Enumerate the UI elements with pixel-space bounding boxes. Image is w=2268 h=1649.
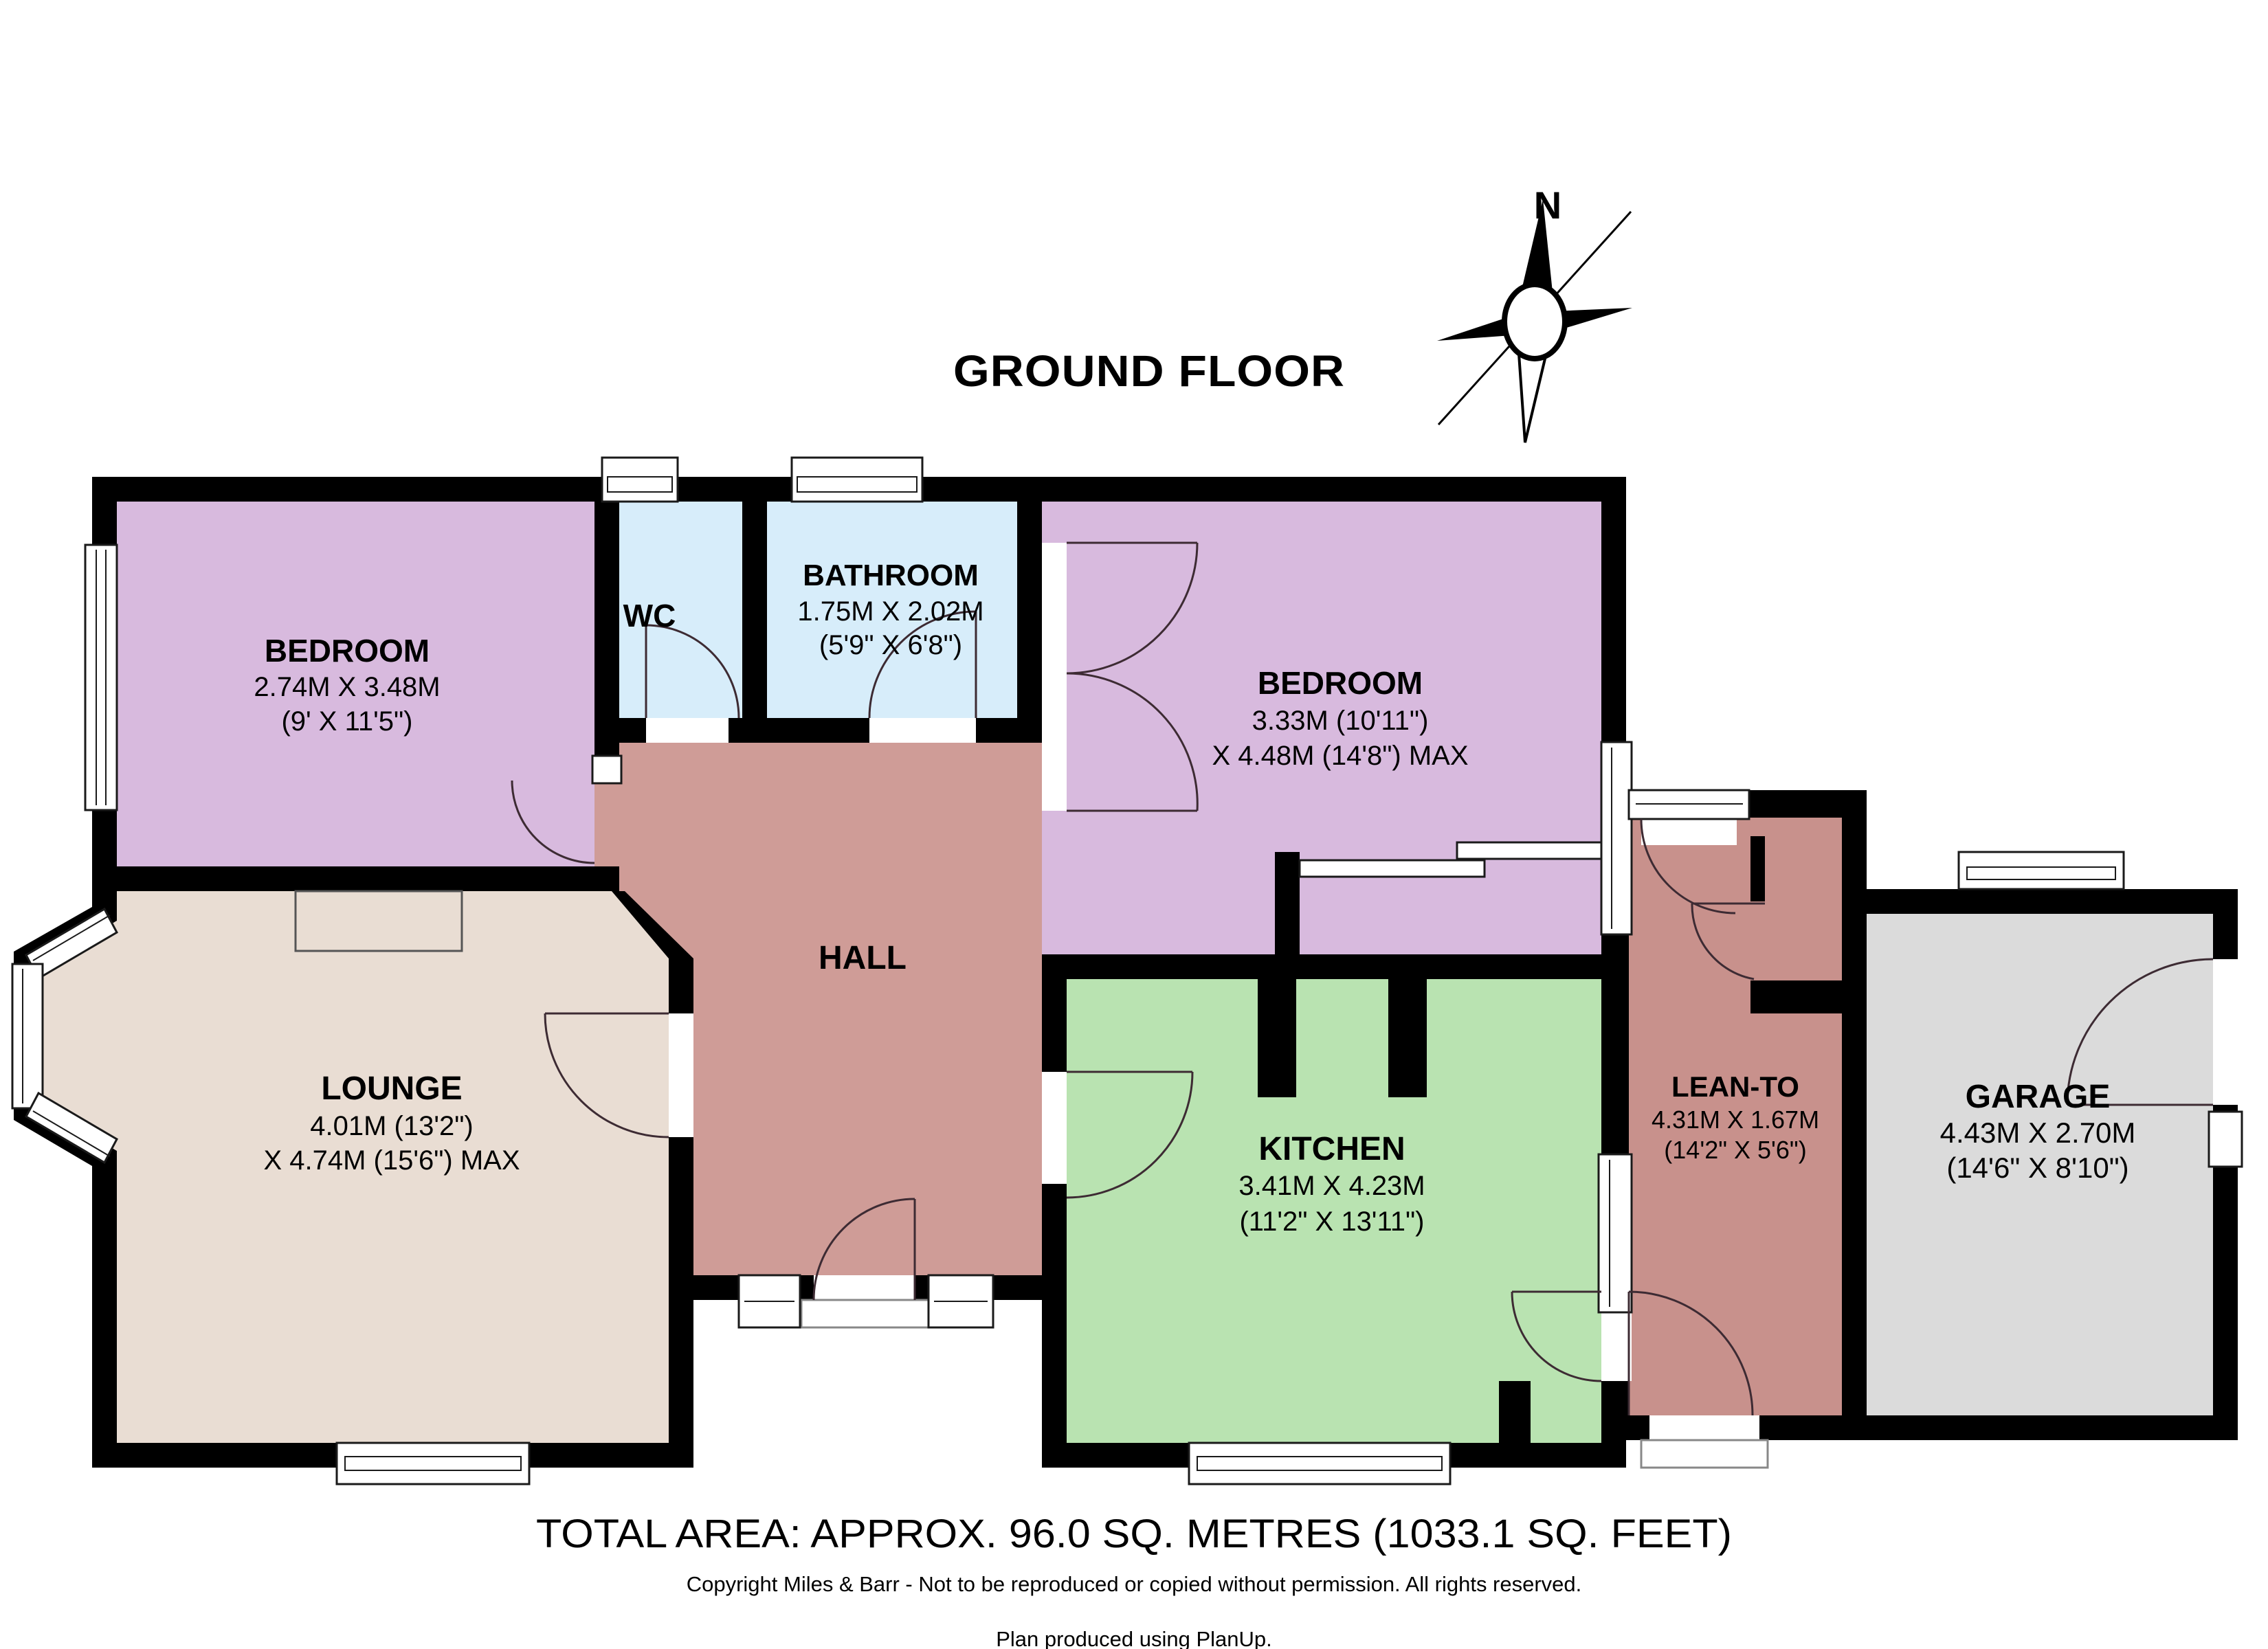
room-dim-1: 3.41M X 4.23M [1238, 1171, 1425, 1201]
room-label-bathroom: BATHROOM 1.75M X 2.02M (5'9" X 6'8") [797, 559, 983, 660]
door-opening-lounge [669, 1013, 693, 1137]
wall-stub-kitchen-right [1388, 979, 1427, 1097]
window-kitchen-lean-to [1599, 1154, 1632, 1312]
room-name: LOUNGE [321, 1070, 462, 1107]
window-bay-left [12, 964, 43, 1108]
wall-stub-kitchen-left [1258, 979, 1296, 1097]
room-label-hall: HALL [819, 940, 907, 976]
page-title: GROUND FLOOR [953, 346, 1345, 396]
room-dim-2: (14'2" X 5'6") [1664, 1136, 1806, 1164]
window-lounge-bottom [337, 1443, 529, 1484]
produced-with-text: Plan produced using PlanUp. [996, 1627, 1272, 1649]
door-leaf-bedroom-left [592, 756, 621, 783]
front-porch-step [801, 1300, 929, 1327]
door-opening-bathroom [869, 718, 976, 743]
room-dim-1: 4.01M (13'2") [310, 1111, 474, 1141]
door-opening-lean-to-top [1641, 818, 1737, 845]
compass-hub [1504, 284, 1565, 359]
room-name: LEAN-TO [1671, 1070, 1799, 1103]
room-dim-2: (11'2" X 13'11") [1239, 1207, 1424, 1237]
window-bedroom-left [85, 545, 117, 810]
room-hall-door-nook [594, 781, 619, 866]
room-dim-2: (14'6" X 8'10") [1946, 1152, 2128, 1184]
room-label-bedroom-left: BEDROOM 2.74M X 3.48M (9' X 11'5") [254, 633, 440, 737]
door-opening-kitchen [1042, 1072, 1067, 1184]
copyright-text: Copyright Miles & Barr - Not to be repro… [687, 1572, 1582, 1596]
room-name: BEDROOM [265, 633, 430, 669]
wall-stub-bedroom-right [1275, 852, 1300, 954]
sliding-door-rail-left [1300, 860, 1485, 877]
window-kitchen-bottom [1189, 1443, 1450, 1484]
room-dim-1: 2.74M X 3.48M [254, 672, 440, 702]
window-bathroom [792, 458, 922, 502]
room-name: WC [623, 598, 676, 633]
room-name: BEDROOM [1258, 665, 1423, 701]
door-opening-wc [646, 718, 729, 743]
room-label-garage: GARAGE 4.43M X 2.70M (14'6" X 8'10") [1940, 1079, 2136, 1184]
floor-plan-page: N GROUND FLOOR BEDROOM 2.74M X 3.48M (9'… [0, 0, 2268, 1649]
wall-stub-lean-to-horizontal [1750, 980, 1842, 1013]
room-dim-1: 4.31M X 1.67M [1652, 1106, 1819, 1134]
lounge-chimney-breast [296, 891, 462, 951]
room-dim-2: (9' X 11'5") [281, 706, 412, 737]
room-dim-2: X 4.74M (15'6") MAX [263, 1145, 520, 1176]
wall-stub-kitchen-bottom [1499, 1381, 1531, 1450]
room-dim-2: X 4.48M (14'8") MAX [1212, 741, 1468, 771]
room-dim-1: 3.33M (10'11") [1252, 706, 1429, 736]
wall-stub-lean-to-vertical [1750, 836, 1765, 901]
room-name: BATHROOM [803, 559, 979, 592]
compass [1437, 199, 1632, 442]
door-opening-front [814, 1275, 915, 1300]
total-area-text: TOTAL AREA: APPROX. 96.0 SQ. METRES (103… [536, 1512, 1732, 1556]
door-opening-bedroom-right [1042, 543, 1067, 811]
room-label-lean-to: LEAN-TO 4.31M X 1.67M (14'2" X 5'6") [1652, 1070, 1819, 1164]
window-bedroom-right [1601, 742, 1632, 934]
floor-plan-svg: N GROUND FLOOR BEDROOM 2.74M X 3.48M (9'… [0, 0, 2268, 1649]
room-dim-1: 4.43M X 2.70M [1940, 1117, 2136, 1149]
lean-to-bottom-frame [1641, 1440, 1768, 1468]
room-name: HALL [819, 940, 907, 976]
sliding-door-rail-right [1457, 842, 1601, 859]
door-opening-lean-to-bottom [1649, 1415, 1759, 1440]
room-dim-1: 1.75M X 2.02M [797, 596, 983, 627]
window-wc [602, 458, 678, 502]
room-name: GARAGE [1966, 1079, 2111, 1115]
room-label-wc: WC [623, 598, 676, 633]
room-label-kitchen: KITCHEN 3.41M X 4.23M (11'2" X 13'11") [1238, 1131, 1425, 1237]
door-opening-garage [2213, 959, 2238, 1105]
room-dim-2: (5'9" X 6'8") [819, 630, 962, 660]
compass-north-label: N [1534, 183, 1561, 227]
window-garage-side [2209, 1112, 2242, 1167]
window-garage [1959, 852, 2124, 889]
room-name: KITCHEN [1258, 1131, 1405, 1167]
